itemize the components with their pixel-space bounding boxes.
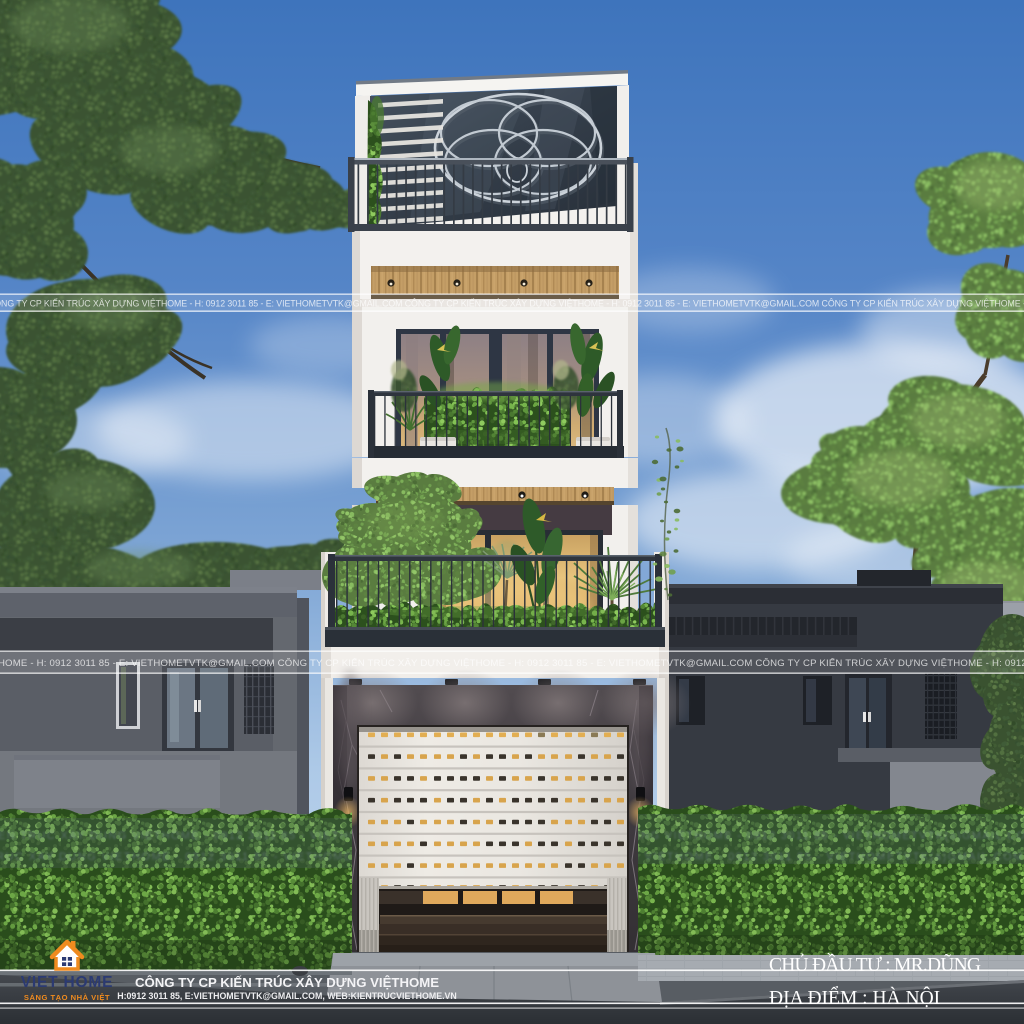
svg-text:CÔNG TY CP KIẾN TRÚC XÂY DỰNG: CÔNG TY CP KIẾN TRÚC XÂY DỰNG VIỆTHOME -… (0, 299, 1024, 309)
svg-text:CHỦ ĐẦU TƯ : MR.DŨNG: CHỦ ĐẦU TƯ : MR.DŨNG (769, 954, 981, 976)
svg-text:SÁNG TẠO NHÀ VIỆT: SÁNG TẠO NHÀ VIỆT (24, 993, 110, 1002)
svg-text:CÔNG TY CP KIẾN TRÚC XÂY DỰNG: CÔNG TY CP KIẾN TRÚC XÂY DỰNG VIỆTHOME -… (0, 658, 1024, 669)
svg-text:H:0912 3011 85, E:VIETHOMETVTK: H:0912 3011 85, E:VIETHOMETVTK@GMAIL.COM… (117, 991, 457, 1001)
svg-text:ĐỊA ĐIỂM : HÀ NỘI: ĐỊA ĐIỂM : HÀ NỘI (769, 987, 940, 1009)
svg-text:VIET HOME: VIET HOME (21, 974, 113, 991)
svg-text:CÔNG TY CP KIẾN TRÚC XÂY DỰNG: CÔNG TY CP KIẾN TRÚC XÂY DỰNG VIỆTHOME (135, 975, 439, 990)
